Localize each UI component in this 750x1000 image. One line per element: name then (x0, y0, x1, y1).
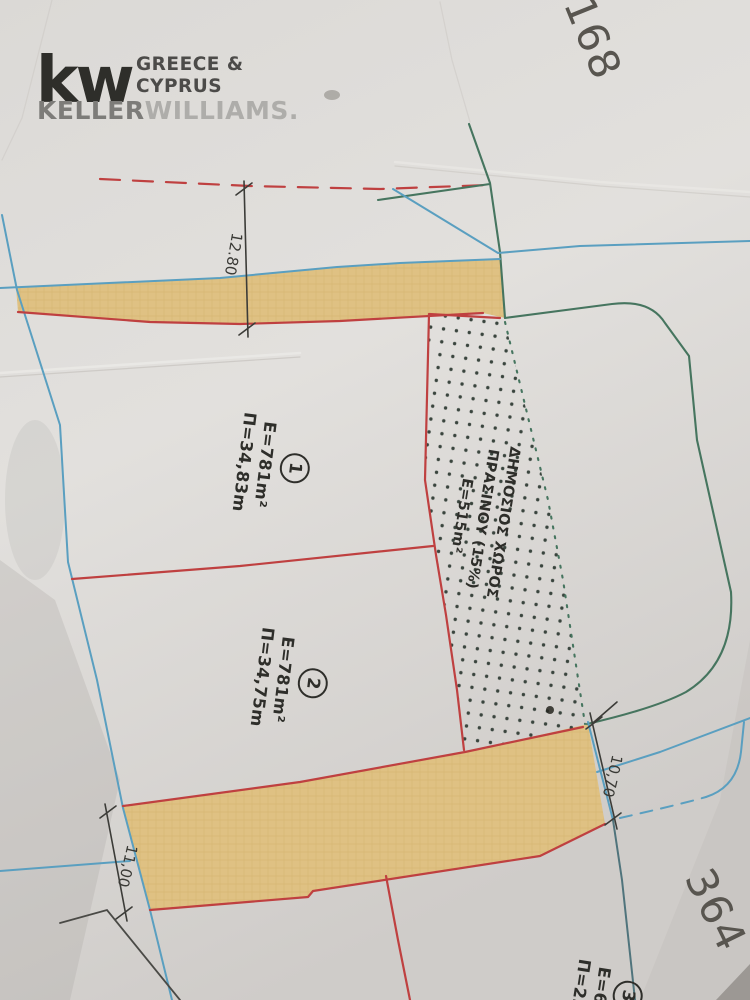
logo-region-line2: CYPRUS (136, 76, 222, 97)
plot-number: 3 (617, 988, 639, 1000)
ink-blot (546, 706, 554, 714)
logo-region-line1: GREECE & (136, 54, 244, 75)
survey-plan-photo: 12.80 11,00 10,70 1 E=781m² Π=34,83m 2 E… (0, 0, 750, 1000)
paper-smudge (324, 90, 340, 100)
plot-number: 1 (284, 461, 305, 475)
plan-canvas: 12.80 11,00 10,70 1 E=781m² Π=34,83m 2 E… (0, 0, 750, 1000)
logo-brand: KELLERWILLIAMS. (37, 96, 299, 125)
plot-number: 2 (302, 676, 323, 690)
